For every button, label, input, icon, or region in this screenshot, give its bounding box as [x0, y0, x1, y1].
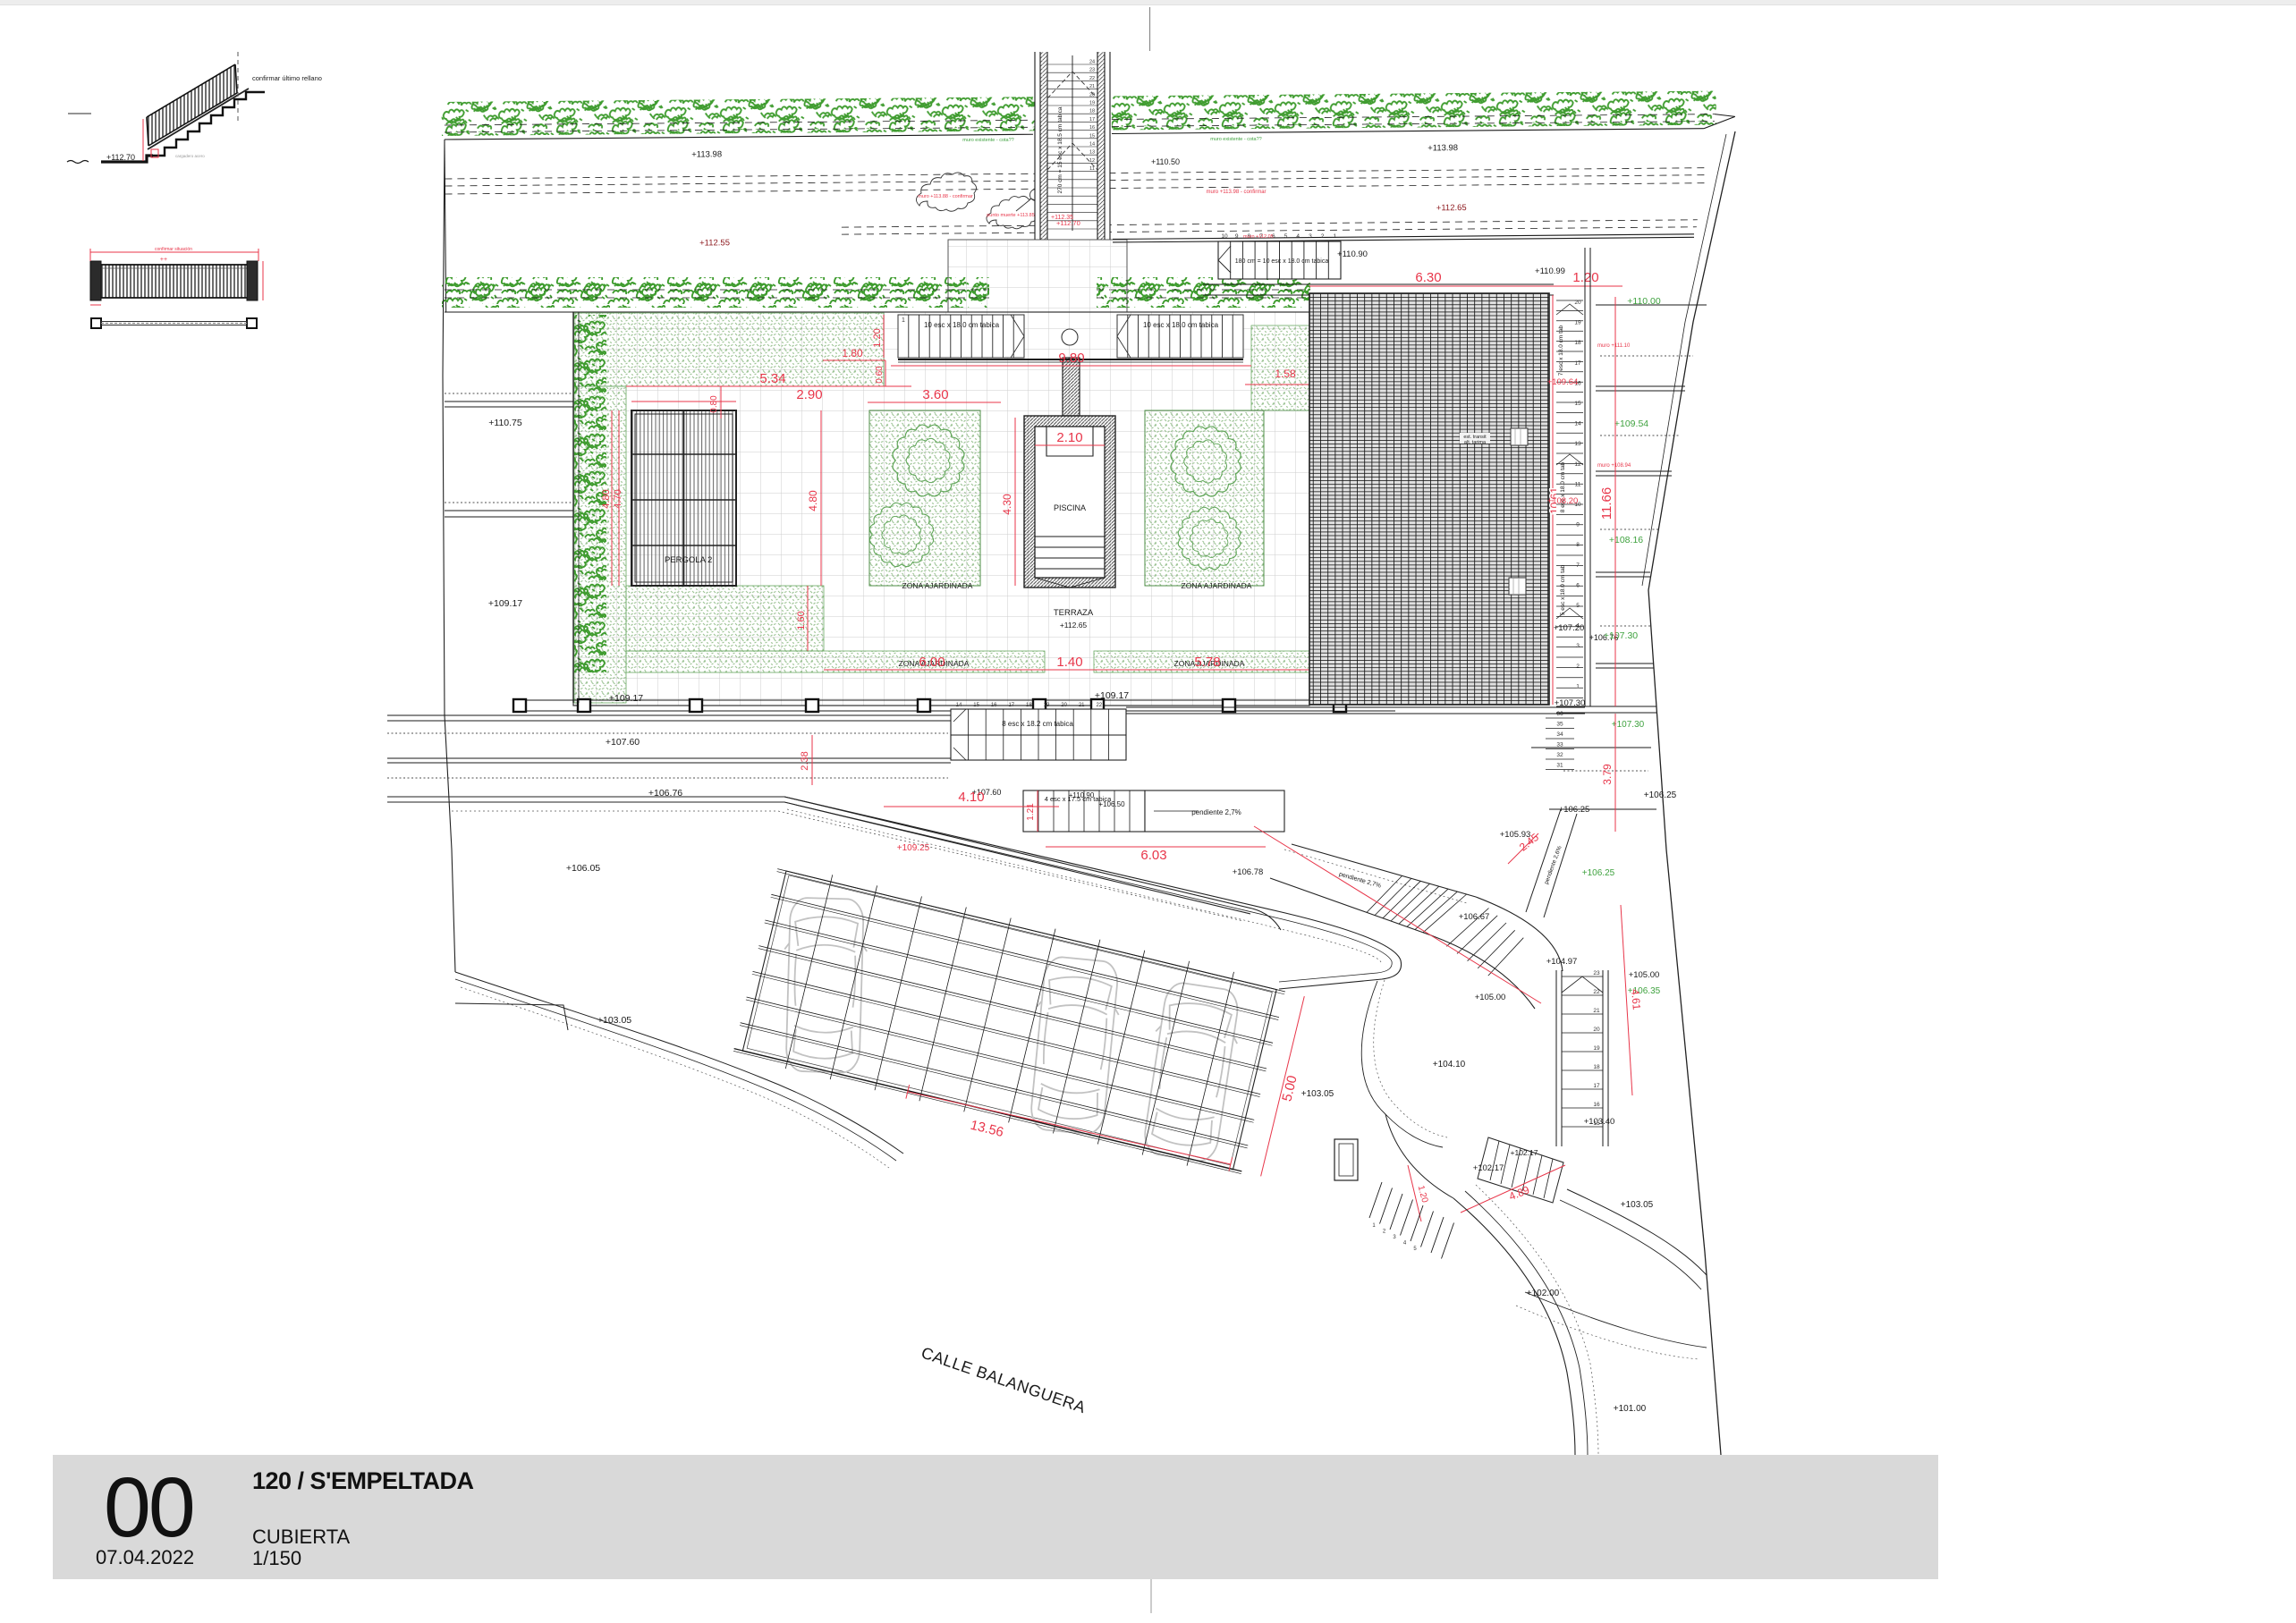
svg-text:++: ++: [160, 257, 167, 263]
svg-text:+106.78: +106.78: [1233, 867, 1264, 877]
svg-text:+106.05: +106.05: [566, 863, 600, 874]
svg-text:34: 34: [1556, 731, 1563, 738]
svg-text:+110.99: +110.99: [1535, 266, 1565, 276]
svg-text:+105.00: +105.00: [1629, 970, 1660, 980]
svg-text:muro +111.10: muro +111.10: [1597, 343, 1631, 349]
svg-text:23: 23: [1089, 68, 1095, 73]
svg-text:18: 18: [1089, 109, 1095, 114]
svg-text:17: 17: [1008, 703, 1014, 708]
svg-text:2.38: 2.38: [800, 751, 810, 770]
svg-text:9: 9: [1576, 522, 1580, 528]
svg-text:18: 18: [1026, 703, 1032, 708]
svg-text:+113.98: +113.98: [1428, 143, 1458, 153]
svg-text:1.21: 1.21: [1026, 803, 1036, 821]
svg-text:7 esc x 18.0 cm tab: 7 esc x 18.0 cm tab: [1558, 325, 1564, 376]
svg-text:17: 17: [1574, 360, 1581, 367]
svg-text:+112.65: +112.65: [1436, 203, 1467, 213]
svg-text:18: 18: [1574, 340, 1581, 346]
svg-text:pendiente 2,7%: pendiente 2,7%: [1191, 808, 1241, 816]
svg-text:1.40: 1.40: [1056, 655, 1082, 670]
svg-text:2.10: 2.10: [1056, 430, 1082, 445]
svg-text:TERRAZA: TERRAZA: [1054, 608, 1094, 618]
svg-text:5: 5: [1284, 233, 1288, 240]
svg-text:15: 15: [1593, 1120, 1600, 1127]
svg-text:PERGOLA 2: PERGOLA 2: [665, 555, 712, 565]
svg-text:23: 23: [1593, 970, 1600, 976]
svg-text:15: 15: [1089, 133, 1095, 139]
svg-text:8: 8: [1576, 542, 1580, 548]
svg-text:+104.97: +104.97: [1546, 957, 1578, 967]
svg-text:confirmar último rellano: confirmar último rellano: [252, 74, 322, 82]
svg-text:punto muerte +113.85: punto muerte +113.85: [987, 213, 1035, 218]
svg-text:+110.50: +110.50: [1151, 157, 1180, 166]
svg-text:+105.00: +105.00: [1475, 993, 1506, 1002]
svg-text:1.60: 1.60: [796, 611, 807, 630]
svg-text:32: 32: [1556, 752, 1563, 758]
svg-text:1.80: 1.80: [842, 347, 863, 359]
svg-text:11: 11: [1089, 166, 1095, 172]
svg-text:1.20: 1.20: [1572, 270, 1598, 285]
svg-text:8 esc x 18.2 cm tabica: 8 esc x 18.2 cm tabica: [1002, 720, 1073, 728]
svg-text:+110.90: +110.90: [1069, 791, 1095, 799]
svg-text:7: 7: [1576, 562, 1580, 569]
svg-text:+103.05: +103.05: [1301, 1089, 1334, 1099]
svg-text:10: 10: [1221, 233, 1228, 240]
svg-text:120 / S'EMPELTADA: 120 / S'EMPELTADA: [252, 1467, 473, 1494]
svg-text:21: 21: [1089, 84, 1095, 89]
svg-text:180 cm = 10 esc x 18.0 cm tabi: 180 cm = 10 esc x 18.0 cm tabica: [1235, 258, 1329, 265]
svg-text:00: 00: [104, 1460, 193, 1555]
svg-text:4.70: 4.70: [613, 489, 623, 508]
svg-text:+102.17: +102.17: [1511, 1148, 1538, 1157]
svg-text:1: 1: [1576, 683, 1580, 689]
svg-text:+112.70: +112.70: [106, 153, 135, 162]
svg-text:20: 20: [1574, 300, 1581, 306]
svg-text:18: 18: [1593, 1064, 1600, 1070]
svg-text:4.30: 4.30: [1001, 494, 1013, 515]
svg-text:4.61: 4.61: [1629, 988, 1643, 1010]
svg-text:5.78: 5.78: [1194, 655, 1220, 670]
svg-text:14: 14: [1089, 142, 1095, 148]
svg-text:1.58: 1.58: [1275, 368, 1296, 380]
svg-text:16: 16: [1089, 125, 1095, 131]
svg-text:+107.30: +107.30: [1555, 698, 1586, 708]
svg-text:muro existente - cota??: muro existente - cota??: [1210, 137, 1261, 142]
svg-text:ZONA AJARDINADA: ZONA AJARDINADA: [1182, 581, 1252, 590]
svg-text:+109.17: +109.17: [1095, 690, 1129, 701]
svg-text:15: 15: [1574, 401, 1581, 407]
svg-text:19: 19: [1574, 320, 1581, 326]
svg-text:+102.00: +102.00: [1527, 1289, 1560, 1298]
svg-text:+108.16: +108.16: [1609, 535, 1643, 545]
svg-text:33: 33: [1556, 742, 1563, 748]
svg-text:10 esc x 18.0 cm tabica: 10 esc x 18.0 cm tabica: [924, 321, 1000, 329]
svg-text:6.00: 6.00: [919, 655, 945, 670]
svg-text:270 cm = 15 esc x 18.5 cm tabi: 270 cm = 15 esc x 18.5 cm tabica: [1057, 106, 1063, 193]
svg-text:+113.98: +113.98: [691, 149, 722, 159]
svg-text:21: 21: [1593, 1008, 1600, 1014]
svg-text:16: 16: [1593, 1102, 1600, 1108]
svg-text:2.90: 2.90: [796, 387, 822, 402]
svg-text:1: 1: [902, 317, 905, 324]
svg-text:+109.25: +109.25: [897, 843, 930, 853]
svg-text:15: 15: [973, 703, 979, 708]
svg-text:0.80: 0.80: [709, 395, 719, 413]
svg-text:ZONA AJARDINADA: ZONA AJARDINADA: [902, 581, 973, 590]
svg-text:+106.25: +106.25: [1582, 868, 1615, 878]
svg-text:16: 16: [991, 703, 997, 708]
svg-text:+112.55: +112.55: [699, 238, 730, 248]
svg-text:+108.20: +108.20: [1547, 496, 1579, 506]
svg-text:+106.67: +106.67: [1459, 912, 1490, 922]
svg-text:6: 6: [1576, 582, 1580, 588]
svg-text:cargadero acero: cargadero acero: [175, 154, 205, 158]
svg-text:+110.90: +110.90: [1337, 249, 1368, 259]
svg-text:0.60: 0.60: [875, 366, 885, 384]
svg-text:20: 20: [1061, 703, 1067, 708]
svg-text:20: 20: [1593, 1027, 1600, 1033]
svg-text:3.60: 3.60: [922, 387, 948, 402]
svg-text:+107.30: +107.30: [1604, 630, 1638, 641]
svg-text:1/150: 1/150: [252, 1547, 301, 1569]
svg-text:+110.00: +110.00: [1627, 296, 1661, 307]
svg-text:07.04.2022: 07.04.2022: [96, 1546, 194, 1568]
svg-text:24: 24: [1089, 60, 1095, 65]
svg-text:6.30: 6.30: [1415, 270, 1441, 285]
svg-text:1: 1: [1333, 233, 1336, 240]
svg-text:12: 12: [1089, 158, 1095, 164]
svg-text:+109.54: +109.54: [1614, 418, 1648, 429]
svg-text:+109.64: +109.64: [1547, 377, 1579, 387]
svg-text:+106.50: +106.50: [1098, 800, 1125, 808]
svg-text:14: 14: [956, 703, 962, 708]
svg-text:confirmar situación: confirmar situación: [155, 247, 192, 252]
svg-text:3: 3: [1309, 233, 1312, 240]
svg-text:2: 2: [1576, 664, 1580, 670]
svg-text:4: 4: [1296, 233, 1300, 240]
svg-text:14: 14: [1574, 421, 1581, 427]
svg-text:3.79: 3.79: [1601, 764, 1614, 785]
svg-text:muro +113.88 - confirmar: muro +113.88 - confirmar: [918, 194, 973, 199]
svg-text:22: 22: [1096, 703, 1102, 708]
svg-text:6.03: 6.03: [1140, 848, 1166, 863]
svg-text:13: 13: [1574, 441, 1581, 447]
svg-text:17: 17: [1089, 117, 1095, 123]
svg-text:5 esc x 18.0 cm tab: 5 esc x 18.0 cm tab: [1560, 564, 1566, 615]
svg-text:19: 19: [1089, 101, 1095, 106]
svg-text:CUBIERTA: CUBIERTA: [252, 1526, 351, 1548]
svg-text:31: 31: [1556, 763, 1563, 769]
svg-text:4.10: 4.10: [958, 790, 984, 805]
svg-text:9.80: 9.80: [1058, 351, 1084, 366]
svg-text:10 esc x 18.0 cm tabica: 10 esc x 18.0 cm tabica: [1143, 321, 1219, 329]
svg-text:+106.25: +106.25: [1559, 805, 1590, 815]
svg-text:22: 22: [1089, 76, 1095, 81]
svg-text:PISCINA: PISCINA: [1054, 503, 1086, 512]
svg-text:19: 19: [1044, 703, 1050, 708]
svg-text:11: 11: [1575, 481, 1581, 487]
svg-text:1.20: 1.20: [872, 328, 883, 347]
svg-text:+107.20: +107.20: [1554, 623, 1585, 633]
svg-text:35: 35: [1556, 722, 1563, 728]
svg-text:+101.00: +101.00: [1614, 1404, 1647, 1414]
svg-text:2: 2: [1321, 233, 1325, 240]
svg-text:+112.35: +112.35: [1051, 215, 1073, 221]
svg-text:alt. tarima: alt. tarima: [1464, 440, 1487, 445]
svg-text:+107.60: +107.60: [606, 737, 640, 748]
svg-text:muro +112.05: muro +112.05: [1243, 234, 1274, 240]
svg-text:+109.17: +109.17: [609, 693, 643, 704]
svg-text:19: 19: [1593, 1045, 1600, 1052]
svg-text:5.34: 5.34: [759, 371, 785, 386]
svg-text:muro +108.94: muro +108.94: [1597, 463, 1631, 469]
svg-text:+109.17: +109.17: [488, 598, 522, 609]
svg-text:+104.10: +104.10: [1433, 1060, 1466, 1069]
svg-text:3: 3: [1576, 643, 1580, 649]
svg-text:4.80: 4.80: [807, 490, 819, 511]
svg-text:+107.30: +107.30: [1612, 720, 1645, 730]
svg-text:+103.05: +103.05: [1621, 1200, 1654, 1210]
svg-text:+102.17: +102.17: [1473, 1163, 1504, 1173]
svg-text:+106.25: +106.25: [1644, 790, 1677, 800]
svg-text:4.80: 4.80: [601, 489, 612, 508]
svg-text:17: 17: [1593, 1083, 1600, 1089]
svg-text:5: 5: [1576, 603, 1580, 609]
svg-text:+112.65: +112.65: [1060, 621, 1088, 630]
svg-text:muro +113.98 - confirmar: muro +113.98 - confirmar: [1206, 190, 1266, 195]
svg-text:13: 13: [1089, 150, 1095, 156]
svg-text:muro existente - cota??: muro existente - cota??: [962, 138, 1013, 143]
svg-text:9: 9: [1235, 233, 1239, 240]
svg-text:21: 21: [1079, 703, 1085, 708]
svg-text:12: 12: [1574, 461, 1581, 468]
svg-text:11.66: 11.66: [1599, 487, 1614, 520]
svg-text:+110.75: +110.75: [488, 418, 522, 428]
